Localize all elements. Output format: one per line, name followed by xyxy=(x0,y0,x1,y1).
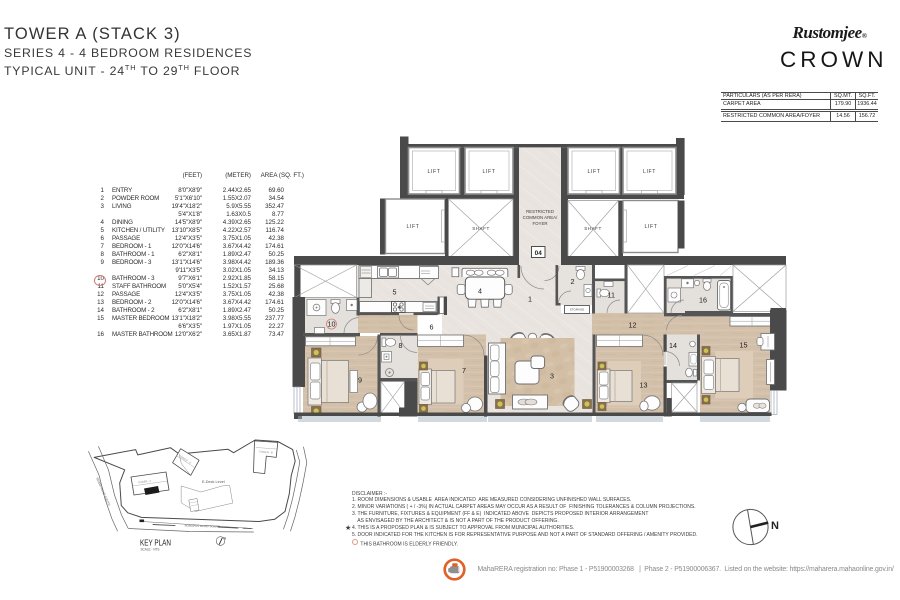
svg-text:KEY PLAN: KEY PLAN xyxy=(140,538,171,548)
svg-text:E-Deck Level: E-Deck Level xyxy=(202,480,225,484)
svg-text:SEWRI ROAD SOUTH: SEWRI ROAD SOUTH xyxy=(95,477,111,507)
svg-text:SORAPUS ROAD SOUTH: SORAPUS ROAD SOUTH xyxy=(184,524,220,529)
svg-text:N: N xyxy=(771,520,779,532)
svg-text:SCALE - NTS: SCALE - NTS xyxy=(141,548,160,552)
svg-text:N: N xyxy=(224,537,227,541)
